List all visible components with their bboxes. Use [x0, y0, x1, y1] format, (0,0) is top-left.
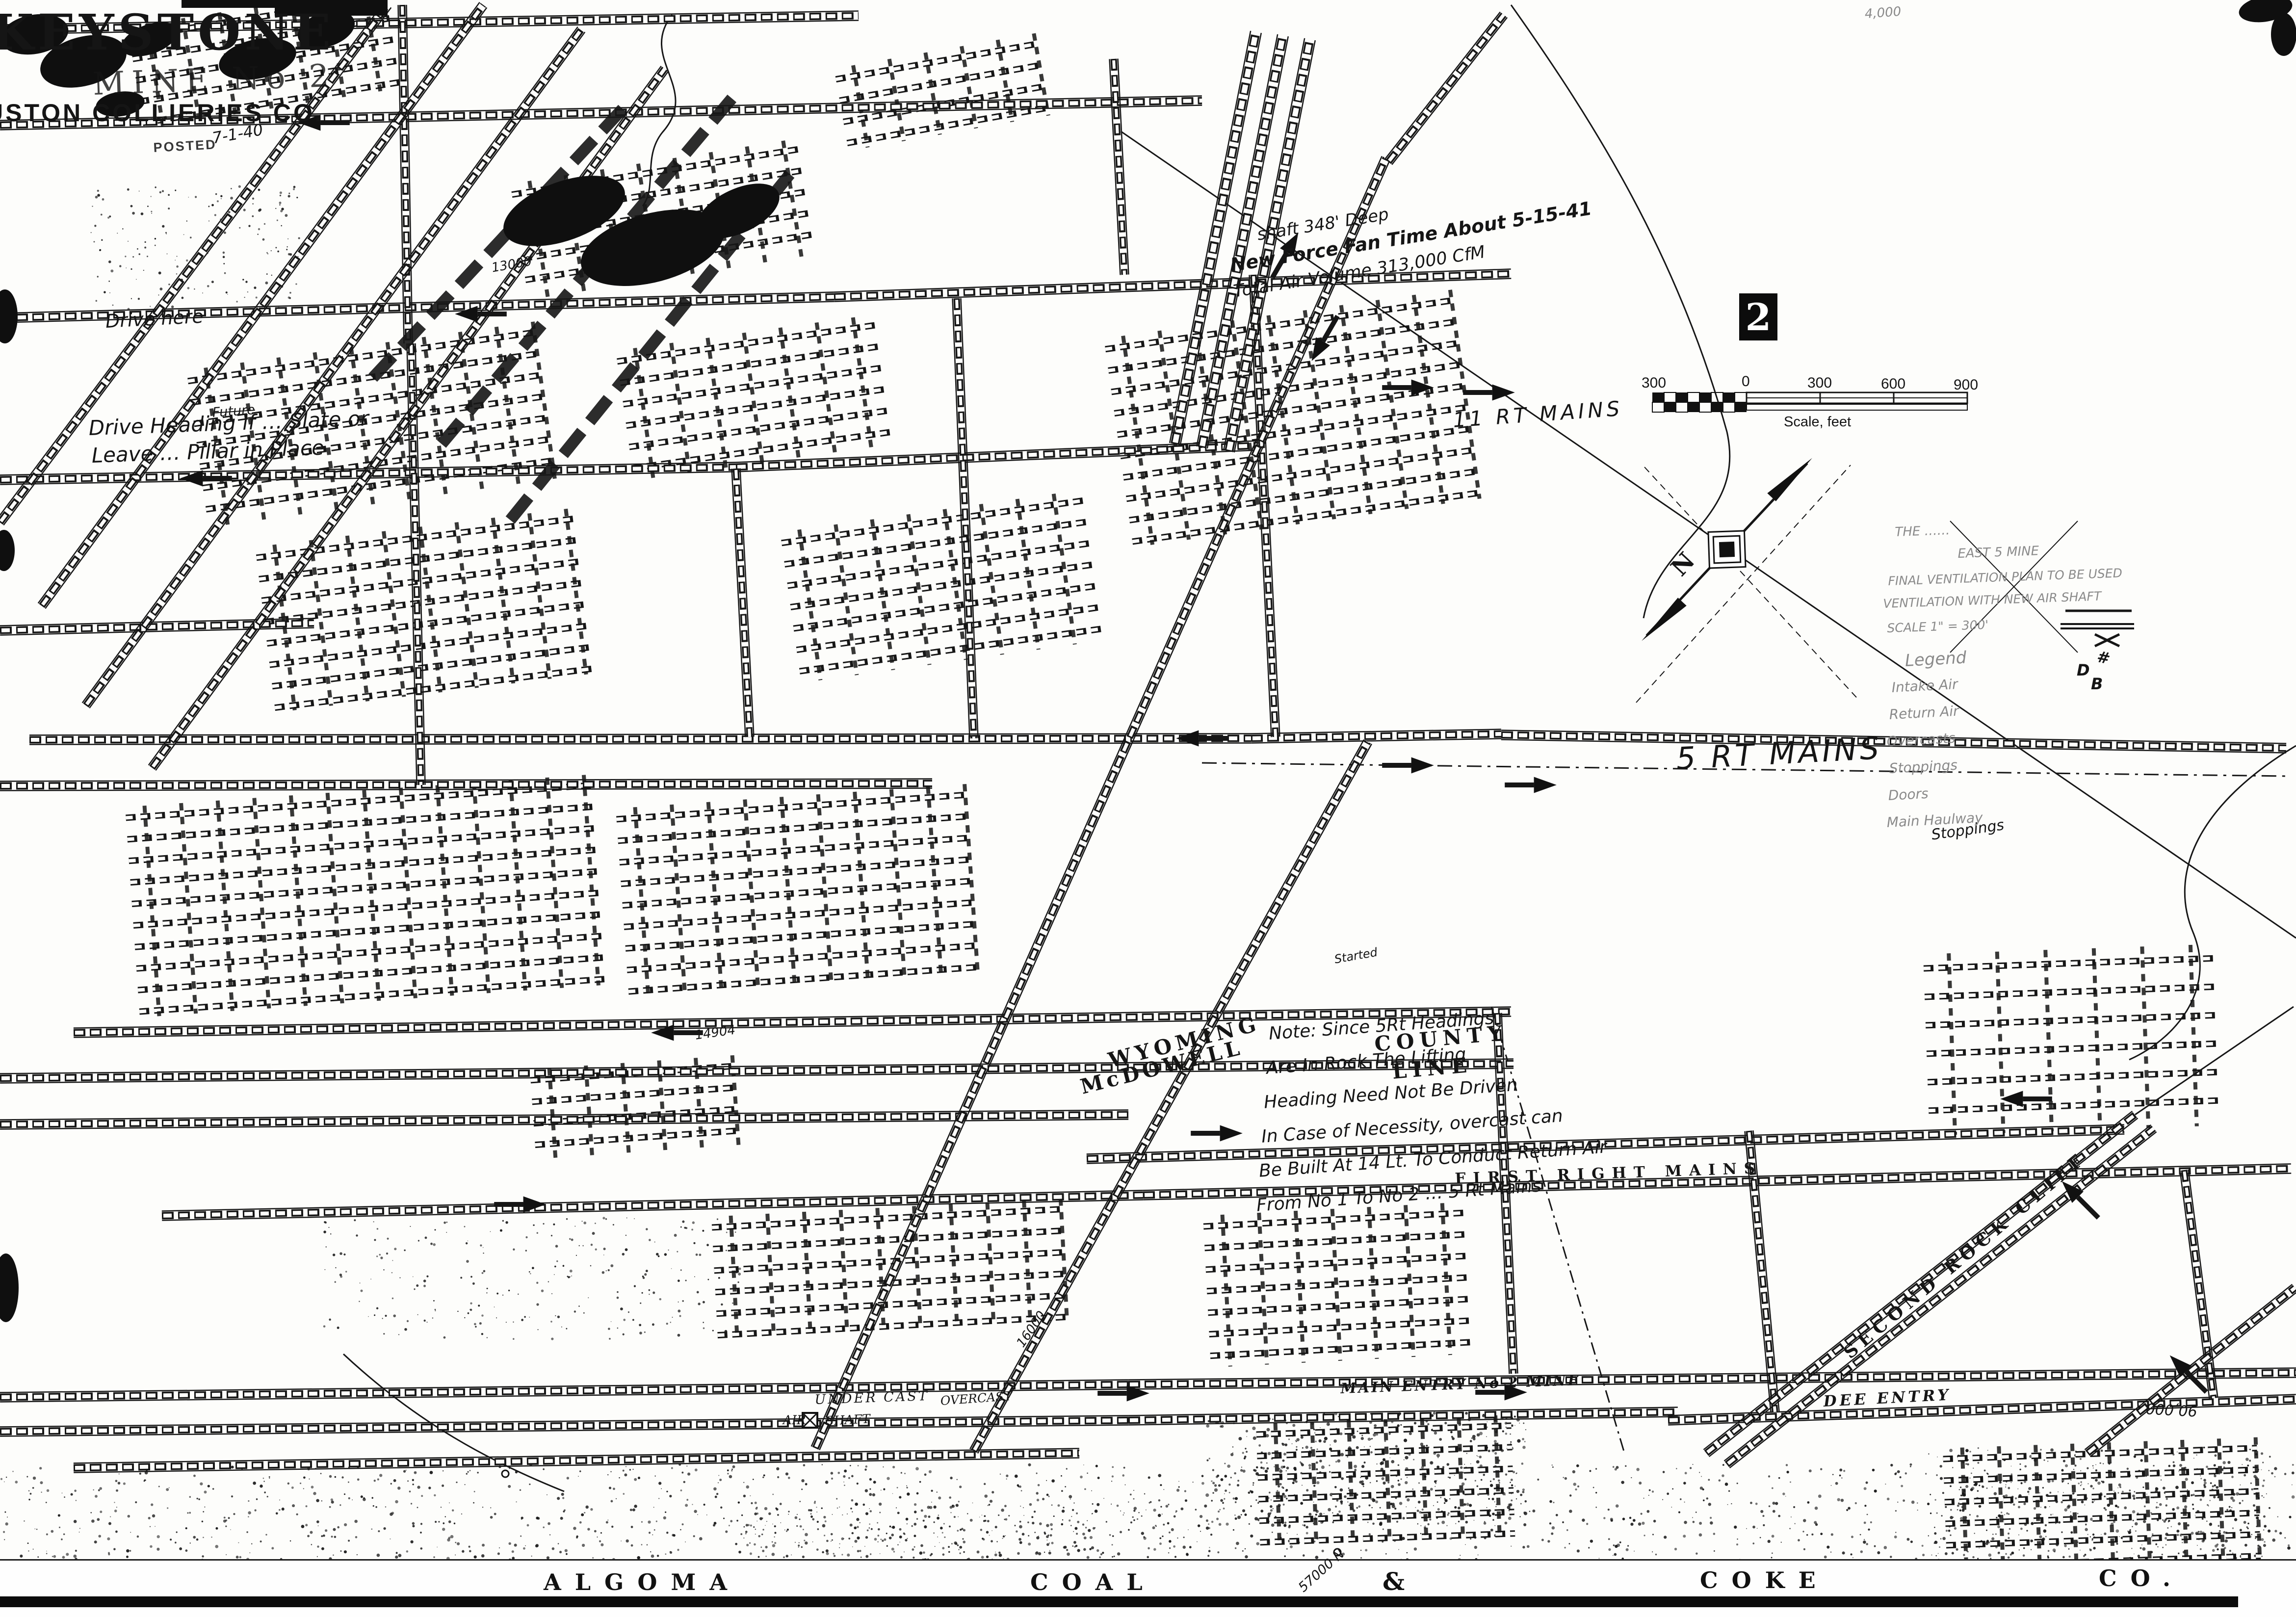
posted-stamp: POSTED	[153, 138, 217, 155]
banner-word-coal: COAL	[1030, 1569, 1156, 1595]
mine-number: MINE No 2	[92, 60, 336, 100]
coord-90000: 90,000	[2145, 1401, 2197, 1418]
scale-caption: Scale, feet	[1784, 415, 1851, 429]
scale-tick-300L: 300	[1642, 376, 1666, 391]
legend-symbol-b: B	[2091, 676, 2103, 692]
boundary-banner-rule	[0, 1596, 2238, 1607]
plan-note-line1: THE ……	[1895, 524, 1950, 539]
legend-item-return: Return Air	[1889, 704, 1959, 722]
plan-note-line5: SCALE 1" = 300'	[1887, 619, 1989, 634]
sheet-number: 2	[1746, 295, 1772, 339]
company-name: USTON COLLIERIES CO.	[0, 101, 324, 125]
legend-item-doors: Doors	[1888, 787, 1929, 803]
legend-item-overcasts: Overcasts	[1886, 731, 1956, 749]
drive-here-note: Drive here	[105, 307, 204, 331]
legend-item-stoppings: Stoppings	[1889, 758, 1958, 776]
mine-map: KEYSTONE MINE No 2 USTON COLLIERIES CO. …	[0, 0, 2296, 1617]
scale-tick-300R: 300	[1807, 376, 1832, 391]
sheet-number-marker: 2	[1739, 293, 1777, 340]
label-undercast: UNDER CAST	[814, 1389, 929, 1407]
banner-word-algoma: ALGOMA	[544, 1569, 741, 1595]
mine-name-title: KEYSTONE	[0, 8, 335, 57]
label-shaft: SHAFT	[825, 1412, 870, 1427]
scale-tick-600: 600	[1881, 377, 1905, 391]
banner-word-co: CO.	[2099, 1565, 2184, 1591]
legend-title: Legend	[1905, 649, 1967, 669]
banner-word-coke: COKE	[1700, 1567, 1829, 1593]
scale-tick-900: 900	[1954, 378, 1978, 392]
banner-word-amp: &	[1383, 1567, 1418, 1596]
scale-tick-0: 0	[1742, 374, 1750, 389]
coord-4000: 4,000	[1864, 5, 1902, 21]
legend-symbol-d: D	[2077, 662, 2090, 678]
label-air: AIR	[783, 1414, 806, 1426]
plan-note-line2: EAST 5 MINE	[1957, 545, 2039, 560]
legend-item-intake: Intake Air	[1891, 678, 1958, 695]
mine-workings-drawing	[0, 0, 2296, 1617]
